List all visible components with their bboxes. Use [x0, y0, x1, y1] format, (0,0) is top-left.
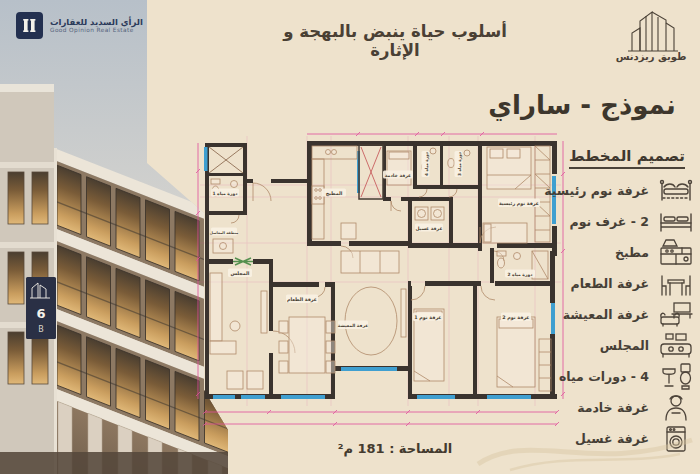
maid-icon — [656, 393, 696, 422]
logo-tuwaiq-residence: طويق ريزدنس — [608, 5, 694, 62]
building-sign: 6 B — [26, 277, 56, 339]
features-header: تصميم المخطط — [569, 147, 685, 169]
entrance-marker — [233, 258, 253, 265]
room-label: غرفة غسيل — [415, 224, 443, 232]
feature-item: المجلس — [559, 330, 699, 361]
feature-item: غرفة نوم رئيسية — [559, 175, 699, 206]
feature-label: غرفة الطعام — [571, 276, 650, 291]
pillars-icon — [16, 12, 43, 39]
feature-label: المجلس — [600, 338, 649, 353]
svg-text:منطقة المغاسل: منطقة المغاسل — [210, 231, 238, 235]
feature-label: غرفة المعيشة — [563, 307, 649, 322]
room-label: دورة مياه 3 — [455, 151, 464, 177]
feature-item: 2 - غرف نوم — [559, 206, 699, 237]
sign-number: 6 — [36, 306, 45, 321]
feature-label: 2 - غرف نوم — [570, 214, 649, 229]
room-label: منطقة المغاسل — [210, 228, 238, 236]
master-bed-icon — [656, 177, 696, 204]
room-label: غرفة نوم رئيسية — [498, 199, 540, 208]
feature-label: غرفة خادمة — [577, 400, 649, 415]
street-band — [0, 452, 240, 474]
room-label: غرفة المعيشة — [338, 321, 368, 330]
dining-table-icon — [656, 270, 696, 298]
room-label: المطبخ — [322, 189, 346, 197]
area-label: المساحة : 181 م² — [300, 441, 490, 456]
logo-good-opinion: الرأي السديد للعقارات Good Opinion Real … — [16, 12, 143, 39]
line-buildings-icon — [608, 5, 694, 53]
features-panel: تصميم المخطط غرفة نوم رئيسية 2 - غرف نوم — [559, 147, 699, 454]
furniture — [210, 146, 551, 391]
brand-name-en: Good Opinion Real Estate — [50, 27, 143, 34]
feature-item: 4 - دورات مياه — [559, 361, 699, 392]
poster: 6 B الرأي السديد للعقارات Good Opinion R… — [0, 0, 700, 474]
residence-name: طويق ريزدنس — [608, 51, 694, 62]
feature-item: غرفة خادمة — [559, 392, 699, 423]
feature-item: مطبخ — [559, 237, 699, 268]
room-label: غرفة نوم 1 — [413, 313, 443, 322]
floor-plan: المطبخ غرفة خادمة دورة مياه 4 دورة مياه … — [195, 131, 567, 433]
bathroom-icon — [656, 361, 696, 392]
model-title: نموذج - ساراي — [468, 90, 696, 120]
feature-item: غرفة الطعام — [559, 268, 699, 299]
tagline: أسلوب حياة ينبض بالبهجة و الإثارة — [262, 22, 528, 60]
feature-label: 4 - دورات مياه — [559, 369, 649, 384]
bed-icon — [656, 208, 696, 235]
sign-letter: B — [38, 325, 44, 334]
feature-label: مطبخ — [615, 245, 649, 260]
room-label: دورة مياه 1 — [211, 189, 239, 197]
room-label: غرفة الطعام — [286, 295, 318, 304]
living-room-icon — [656, 300, 696, 329]
brand-name-ar: الرأي السديد للعقارات — [50, 17, 143, 28]
room-label: دورة مياه 4 — [422, 151, 431, 177]
room-label: غرفة خادمة — [383, 171, 413, 179]
room-label: دورة مياه 2 — [505, 270, 535, 278]
duct-shaft — [359, 145, 383, 199]
room-label: المجلس — [228, 269, 252, 278]
feature-item: غرفة المعيشة — [559, 299, 699, 330]
feature-label: غرفة نوم رئيسية — [544, 183, 649, 198]
elevator-shaft — [209, 147, 243, 173]
watermark — [470, 422, 700, 474]
majlis-sofa-icon — [656, 332, 696, 360]
kitchen-icon — [656, 238, 696, 267]
room-label: غرفة نوم 2 — [501, 313, 531, 322]
